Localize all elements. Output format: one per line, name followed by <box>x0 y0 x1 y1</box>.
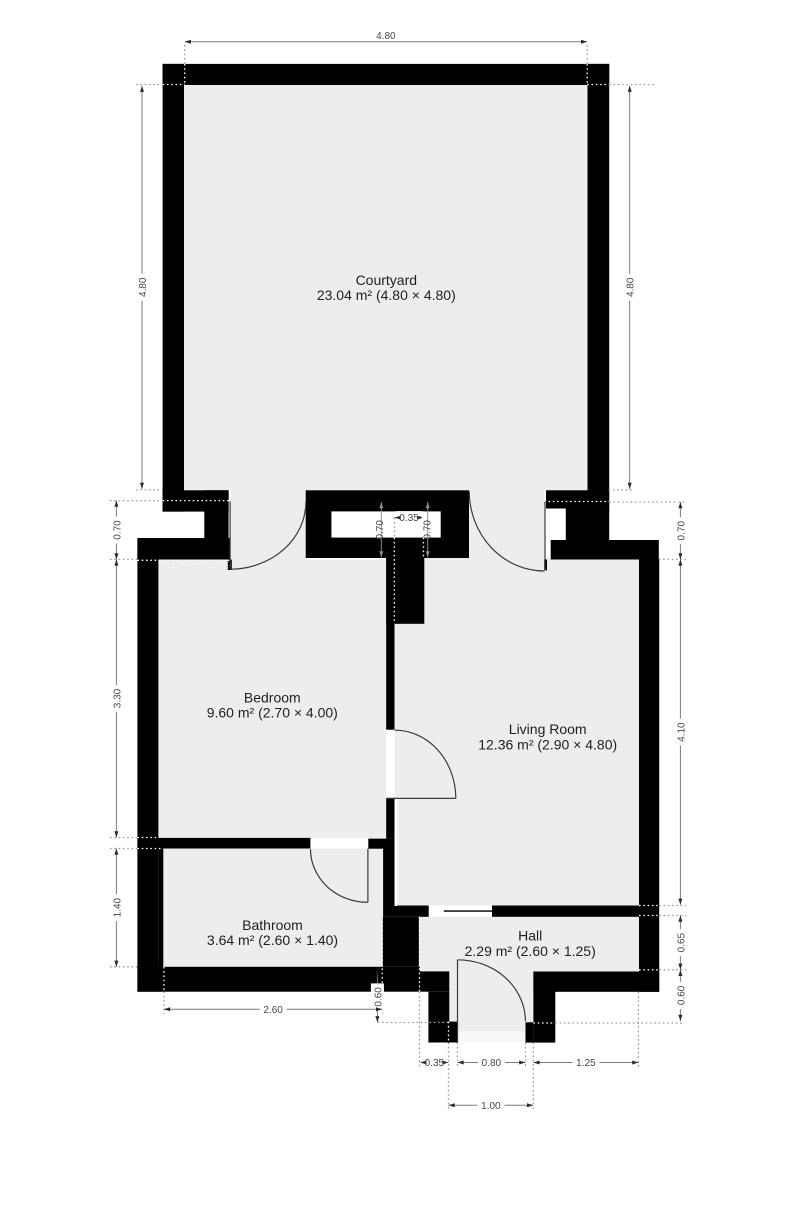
svg-text:23.04 m² (4.80 × 4.80): 23.04 m² (4.80 × 4.80) <box>317 287 456 303</box>
svg-text:0.70: 0.70 <box>112 520 123 540</box>
svg-text:Courtyard: Courtyard <box>356 272 417 288</box>
svg-text:1.00: 1.00 <box>481 1101 501 1112</box>
svg-text:0.60: 0.60 <box>676 985 687 1005</box>
svg-text:Hall: Hall <box>518 928 542 944</box>
svg-text:0.70: 0.70 <box>375 520 386 540</box>
svg-text:4.80: 4.80 <box>138 277 149 297</box>
svg-text:4.80: 4.80 <box>376 31 396 42</box>
svg-text:0.70: 0.70 <box>422 520 433 540</box>
svg-text:2.60: 2.60 <box>263 1005 283 1016</box>
svg-text:0.60: 0.60 <box>373 987 384 1007</box>
svg-text:1.40: 1.40 <box>112 897 123 917</box>
svg-text:Bedroom: Bedroom <box>244 689 301 705</box>
svg-text:Living Room: Living Room <box>509 721 587 737</box>
svg-text:0.80: 0.80 <box>482 1058 502 1069</box>
svg-text:0.70: 0.70 <box>676 521 687 541</box>
svg-text:1.25: 1.25 <box>576 1058 596 1069</box>
svg-text:0.35: 0.35 <box>425 1058 445 1069</box>
svg-text:2.29 m² (2.60 × 1.25): 2.29 m² (2.60 × 1.25) <box>465 943 596 959</box>
svg-text:12.36 m² (2.90 × 4.80): 12.36 m² (2.90 × 4.80) <box>478 736 617 752</box>
svg-text:3.30: 3.30 <box>112 688 123 708</box>
svg-text:4.80: 4.80 <box>625 277 636 297</box>
svg-text:0.65: 0.65 <box>676 932 687 952</box>
svg-text:Bathroom: Bathroom <box>242 917 303 933</box>
svg-text:0.35: 0.35 <box>399 513 419 524</box>
svg-text:4.10: 4.10 <box>676 722 687 742</box>
svg-text:3.64 m² (2.60 × 1.40): 3.64 m² (2.60 × 1.40) <box>207 932 338 948</box>
svg-text:9.60 m² (2.70 × 4.00): 9.60 m² (2.70 × 4.00) <box>207 705 338 721</box>
